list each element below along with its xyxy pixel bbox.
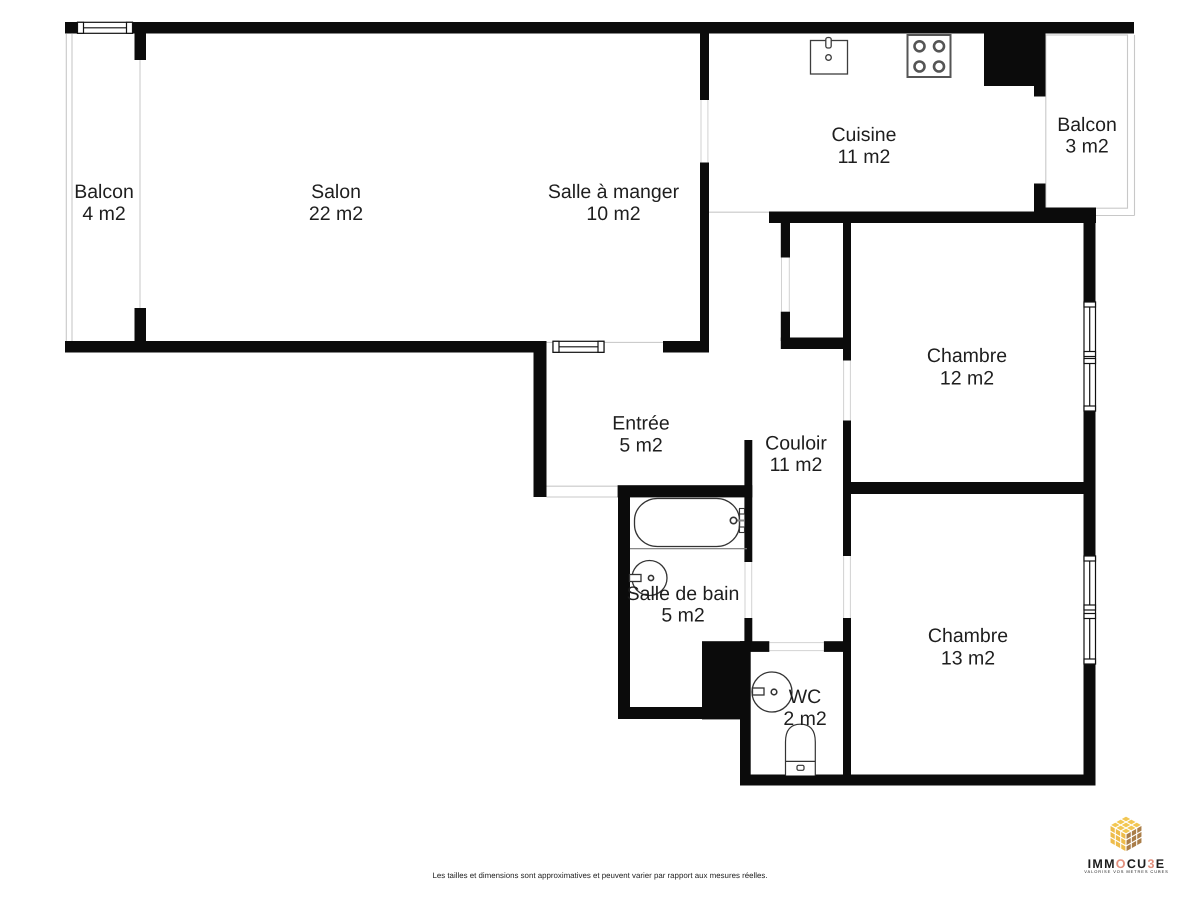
svg-text:WC: WC [789,686,822,708]
svg-text:3 m2: 3 m2 [1065,136,1108,158]
svg-text:11 m2: 11 m2 [838,146,891,168]
svg-text:5 m2: 5 m2 [661,605,704,627]
svg-text:Salle de bain: Salle de bain [627,583,740,605]
svg-text:10 m2: 10 m2 [586,203,640,225]
svg-text:Salon: Salon [311,181,361,203]
svg-text:Les tailles et dimensions sont: Les tailles et dimensions sont approxima… [432,871,767,880]
svg-text:4 m2: 4 m2 [82,203,125,225]
svg-text:5 m2: 5 m2 [619,435,662,457]
svg-text:VALORISE VOS METRES CUBES: VALORISE VOS METRES CUBES [1084,869,1168,874]
svg-text:Chambre: Chambre [928,625,1008,647]
svg-text:11 m2: 11 m2 [770,454,823,476]
svg-text:2 m2: 2 m2 [783,708,826,730]
svg-text:22 m2: 22 m2 [309,203,363,225]
svg-text:13 m2: 13 m2 [941,648,995,670]
svg-text:Cuisine: Cuisine [831,124,896,146]
svg-text:Salle à manger: Salle à manger [548,181,680,203]
svg-text:Couloir: Couloir [765,433,827,455]
svg-text:Chambre: Chambre [927,345,1007,367]
svg-text:12 m2: 12 m2 [940,368,994,390]
svg-text:Balcon: Balcon [74,181,134,203]
svg-text:Entrée: Entrée [612,413,669,435]
svg-text:Balcon: Balcon [1057,114,1117,136]
